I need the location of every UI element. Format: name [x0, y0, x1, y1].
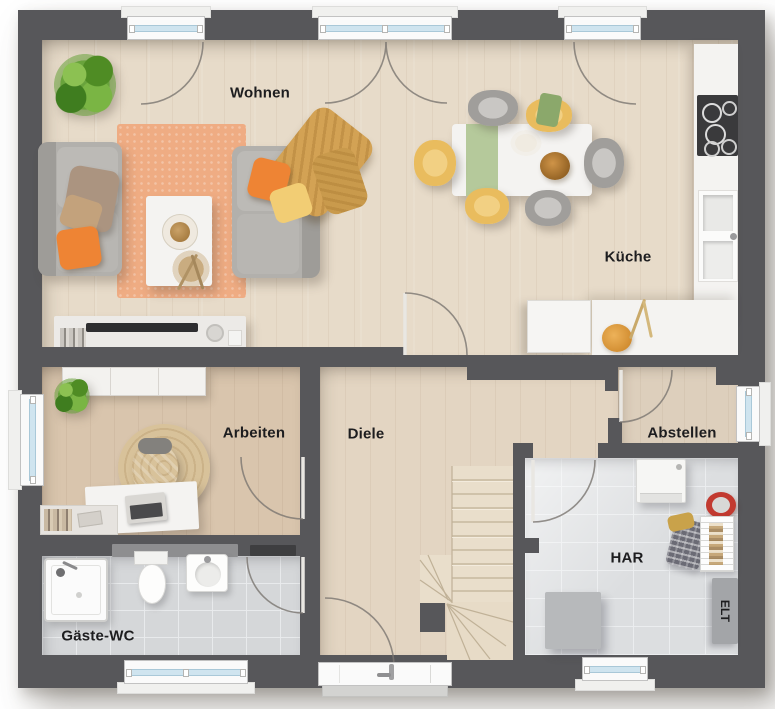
washer-knob	[676, 464, 682, 470]
stair-wall-stub	[420, 603, 445, 632]
dining-chair	[525, 190, 571, 226]
window-handle-icon	[382, 25, 388, 33]
door-handle-icon	[377, 673, 391, 677]
cabinet-divider	[110, 368, 111, 395]
wall	[300, 612, 320, 655]
cabinet-divider	[158, 368, 159, 395]
dining-chair	[414, 140, 456, 186]
dining-chair	[468, 90, 518, 126]
window-handle-icon	[197, 25, 203, 33]
kitchen-sink	[698, 190, 738, 282]
decor-box	[228, 330, 242, 346]
faucet-icon	[730, 233, 737, 240]
burner-icon	[704, 141, 720, 157]
room-label-arbeiten: Arbeiten	[223, 425, 285, 442]
wall	[42, 347, 405, 367]
table-runner	[466, 124, 498, 196]
entry-door	[318, 662, 452, 686]
window-handle-icon	[320, 25, 326, 33]
room-label-har: HAR	[610, 550, 643, 567]
window-glass	[587, 666, 643, 673]
speaker-icon	[206, 324, 224, 342]
wall	[513, 443, 525, 655]
plant-icon	[52, 376, 92, 416]
window	[582, 657, 648, 681]
laptop	[125, 492, 168, 524]
wall	[618, 355, 740, 367]
shower	[44, 558, 108, 622]
door-panel-line	[430, 665, 431, 683]
cooktop	[697, 95, 738, 156]
faucet-icon	[204, 556, 211, 563]
window-handle-icon	[584, 666, 590, 674]
pillow-orange	[55, 225, 102, 270]
basin-inner	[712, 497, 730, 513]
wc-sink	[186, 554, 228, 592]
window-glass	[745, 391, 752, 437]
wall	[300, 367, 320, 457]
laptop-keyboard	[130, 502, 163, 519]
heat-pump-unit	[545, 592, 601, 649]
burner-icon	[702, 103, 722, 123]
wall	[300, 519, 320, 557]
fruit-bowl	[602, 324, 632, 352]
rack-items	[709, 523, 723, 565]
window	[564, 16, 641, 40]
sink-basin	[703, 195, 733, 231]
room-label-gaeste-wc: Gäste-WC	[61, 628, 134, 645]
sofa-right-cushion	[237, 214, 299, 274]
wall	[605, 355, 618, 391]
sofa-left-back	[38, 142, 56, 276]
window	[124, 660, 248, 684]
window	[736, 386, 760, 442]
red-basin	[706, 492, 736, 518]
floor-plan-canvas: Wohnen Küche Arbeiten Diele Abstellen HA…	[0, 0, 775, 709]
washing-machine	[636, 459, 686, 503]
drying-rack	[700, 516, 734, 572]
window-sill	[759, 382, 771, 446]
toilet-bowl	[138, 564, 166, 604]
dining-chair	[465, 188, 509, 224]
terrace-double-door	[318, 16, 452, 40]
window-handle-icon	[566, 25, 572, 33]
wc-radiator	[250, 545, 296, 556]
decor-bowl	[170, 222, 190, 242]
kitchen-cabinet	[527, 300, 591, 353]
flowers-white	[508, 128, 544, 158]
sink-basin	[703, 241, 733, 279]
bronze-bowl	[540, 152, 570, 180]
washer-door	[640, 493, 682, 502]
shower-head-icon	[56, 568, 65, 577]
window-glass	[132, 25, 200, 32]
window-handle-icon	[444, 25, 450, 33]
tv	[86, 323, 198, 332]
books	[44, 509, 72, 531]
dried-plant-icon	[168, 246, 214, 292]
room-label-elt: ELT	[718, 600, 732, 622]
window-glass	[29, 399, 36, 481]
window-handle-icon	[746, 432, 752, 440]
desk-chair-back	[138, 438, 172, 454]
window	[127, 16, 205, 40]
room-label-kueche: Küche	[605, 249, 652, 266]
room-label-diele: Diele	[348, 426, 385, 443]
window-glass	[569, 25, 636, 32]
window-handle-icon	[30, 396, 36, 404]
window-handle-icon	[640, 666, 646, 674]
window-handle-icon	[126, 669, 132, 677]
burner-icon	[721, 139, 737, 155]
room-label-abstellen: Abstellen	[647, 425, 716, 442]
wall	[716, 367, 738, 385]
window-handle-icon	[129, 25, 135, 33]
toilet-tank	[134, 551, 168, 565]
door-handle-icon	[389, 664, 394, 680]
plant-icon	[50, 50, 120, 120]
room-label-wohnen: Wohnen	[230, 85, 290, 102]
window	[20, 394, 44, 486]
wall-stub	[525, 538, 539, 553]
books	[60, 328, 86, 347]
wall	[467, 355, 618, 380]
window-handle-icon	[633, 25, 639, 33]
window-handle-icon	[30, 476, 36, 484]
door-panel-line	[339, 665, 340, 683]
window-handle-icon	[240, 669, 246, 677]
dining-chair	[584, 138, 624, 188]
burner-icon	[722, 101, 737, 116]
wall	[608, 418, 622, 445]
window-handle-icon	[746, 388, 752, 396]
wall	[598, 443, 740, 458]
sink-basin	[195, 562, 221, 587]
window-handle-icon	[183, 669, 189, 677]
drain-icon	[76, 592, 82, 598]
